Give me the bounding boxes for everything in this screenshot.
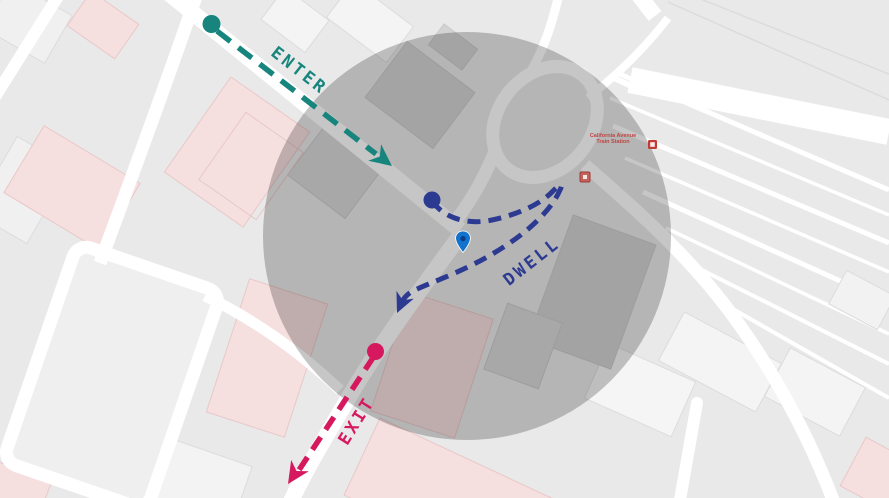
exit-point bbox=[367, 343, 384, 360]
dwell-point bbox=[424, 192, 441, 209]
station-label-line2: Train Station bbox=[581, 139, 645, 145]
enter-point bbox=[203, 15, 221, 33]
map-stage: ENTER DWELL EXIT California Avenue Train… bbox=[0, 0, 889, 498]
map-canvas bbox=[0, 0, 889, 498]
station-label: California Avenue Train Station bbox=[581, 133, 645, 145]
